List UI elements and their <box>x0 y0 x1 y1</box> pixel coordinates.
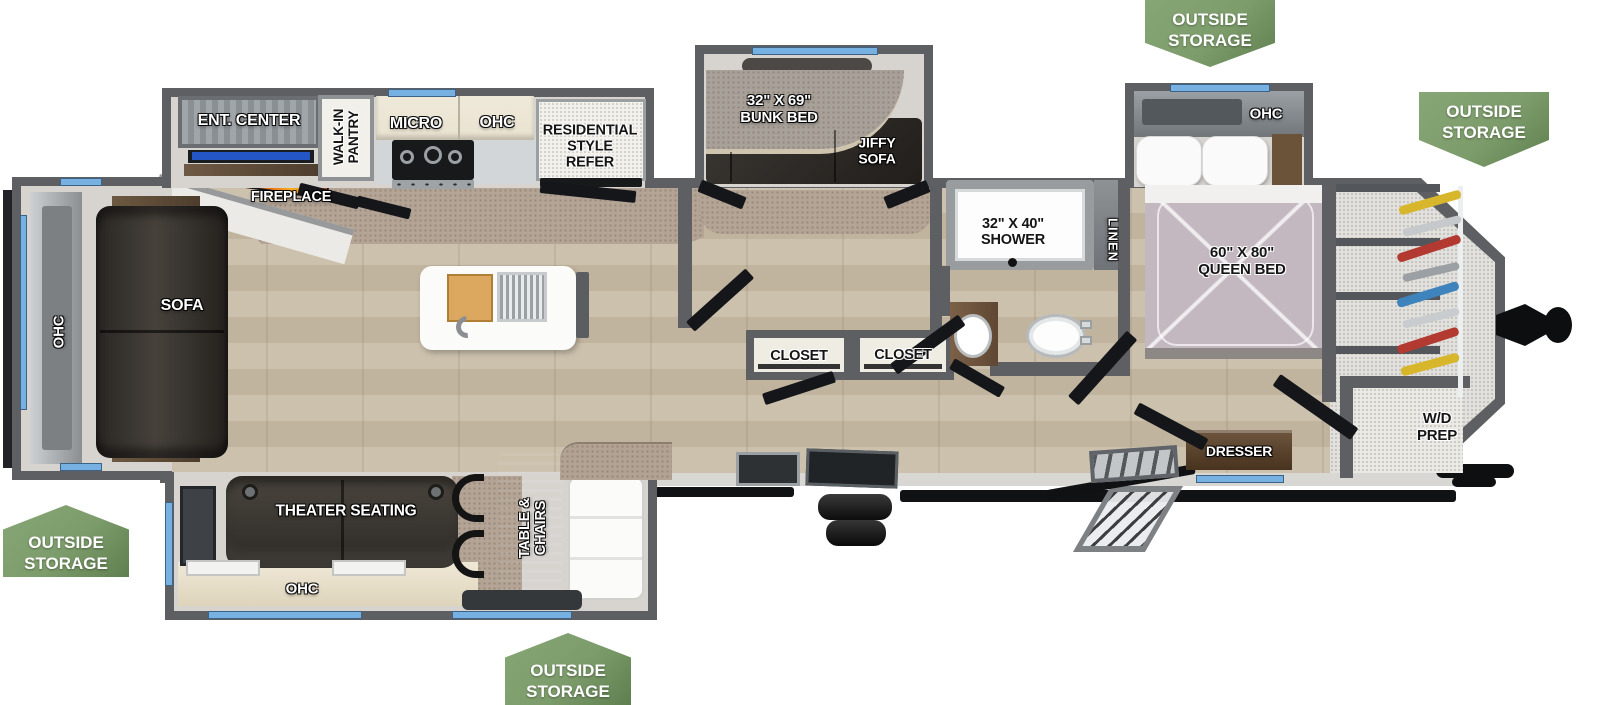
queen-bed-sheet-fold <box>1145 185 1322 203</box>
table-base-mat <box>462 590 582 610</box>
label-theater-seating: THEATER SEATING <box>275 502 416 519</box>
label-closet-left: CLOSET <box>770 348 828 364</box>
rv-floorplan: ENT. CENTER WALK-IN PANTRY MICRO OHC RES… <box>0 0 1600 705</box>
outside-storage-badge-rear: OUTSIDE STORAGE <box>3 505 129 577</box>
oven-front <box>392 180 474 189</box>
label-bedroom-ohc: OHC <box>1250 107 1283 124</box>
bedroom-ohc-shelf <box>1142 99 1242 125</box>
toilet-hinge <box>1080 336 1092 345</box>
window-strip <box>60 463 102 471</box>
toilet-hinge <box>1080 320 1092 329</box>
side-tv-cabinet <box>180 486 216 566</box>
cabinet-divider <box>458 96 460 140</box>
tray-table <box>186 560 260 576</box>
tv-screen <box>192 152 310 160</box>
counter-right <box>474 140 536 184</box>
label-refer: RESIDENTIAL STYLE REFER <box>543 123 637 172</box>
interior-steps <box>1089 445 1179 483</box>
pillow <box>1202 136 1268 186</box>
pillow <box>1136 136 1202 186</box>
entry-door <box>736 452 800 486</box>
bunk-seat-splits <box>834 130 836 182</box>
label-dresser: DRESSER <box>1206 444 1272 460</box>
window-strip <box>388 89 456 97</box>
peninsula-counter <box>560 442 672 480</box>
label-closet-right: CLOSET <box>874 347 932 363</box>
label-shower: 32" X 40" SHOWER <box>981 216 1045 248</box>
theater-headrest <box>428 484 444 500</box>
entry-steps <box>826 520 886 546</box>
burner <box>448 150 462 164</box>
burner <box>424 146 442 164</box>
island-side-panel <box>576 272 589 338</box>
window-strip <box>1196 475 1284 483</box>
label-table-chairs: TABLE & CHAIRS <box>517 498 549 558</box>
outside-storage-badge-front: OUTSIDE STORAGE <box>1419 92 1549 167</box>
bunkroom-left-wall <box>678 188 692 328</box>
stabilizer-jack-foot <box>1452 477 1496 487</box>
sofa-cushion-split <box>100 330 224 333</box>
tv-shelf <box>184 164 318 176</box>
window-strip <box>60 178 102 186</box>
cutting-board <box>447 274 493 322</box>
bath-left-wall <box>938 266 950 316</box>
toilet <box>1026 314 1086 358</box>
tray-table <box>332 560 406 576</box>
window-strip <box>20 215 27 410</box>
outside-storage-badge-bottom: OUTSIDE STORAGE <box>505 633 631 705</box>
bench-seat <box>568 476 644 600</box>
label-bottom-ohc: OHC <box>286 582 319 599</box>
label-bunk-bed: 32" X 69" BUNK BED <box>740 93 818 127</box>
theater-headrest <box>242 484 258 500</box>
bunk-seat-splits <box>730 152 732 182</box>
label-fireplace: FIREPLACE <box>251 189 331 205</box>
closet-left-rod <box>758 364 840 369</box>
label-micro: MICRO <box>390 115 442 133</box>
label-wd-prep: W/D PREP <box>1417 411 1457 445</box>
window-strip <box>1170 84 1270 92</box>
awning-rail <box>652 487 794 497</box>
label-queen-bed: 60" X 80" QUEEN BED <box>1198 245 1285 279</box>
queen-bed-base <box>1145 348 1322 359</box>
label-kitchen-ohc: OHC <box>480 114 515 132</box>
hitch-coupler <box>1544 307 1572 343</box>
counter-left <box>376 140 392 184</box>
label-linen: LINEN <box>1105 218 1120 262</box>
label-jiffy-sofa: JIFFY SOFA <box>858 135 895 166</box>
island-sink <box>497 272 547 322</box>
window-strip <box>165 502 173 586</box>
entry-steps <box>818 494 892 520</box>
label-ent-center: ENT. CENTER <box>198 112 301 130</box>
shower-drain <box>1008 258 1017 267</box>
window-strip <box>208 611 362 619</box>
label-walk-in-pantry: WALK-IN PANTRY <box>331 109 361 165</box>
theater-split <box>341 480 344 564</box>
entry-window <box>805 448 898 488</box>
window-strip <box>752 47 878 55</box>
burner <box>400 150 414 164</box>
window-strip <box>452 611 572 619</box>
bedroom-front-wall <box>1322 180 1336 402</box>
label-rear-ohc: OHC <box>52 316 69 349</box>
label-sofa: SOFA <box>161 297 204 315</box>
outside-storage-badge-top: OUTSIDE STORAGE <box>1145 0 1275 67</box>
nightstand <box>1272 134 1302 186</box>
